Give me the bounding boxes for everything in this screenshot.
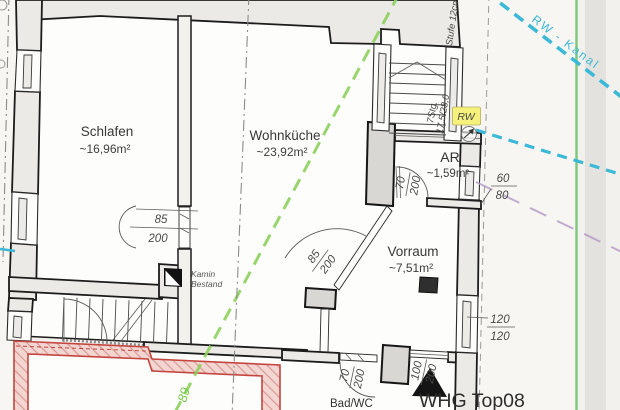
room-area-ar: ~1,59m² [427,168,470,180]
room-label-ar: AR [440,149,459,165]
svg-text:120: 120 [490,314,510,326]
rw-marker-label: RW [457,111,475,123]
kamin-symbol [164,268,182,287]
kamin-note-1: Kamin [191,269,215,279]
bad-south-wall [282,350,339,363]
unit-label: WHG Top08 [419,390,525,410]
room-area-schlafen: ~16,96m² [79,142,130,156]
schlafen-wohnkueche-wall-lower [178,249,191,347]
left-wall-mid [12,91,40,194]
window-left-3 [7,311,32,341]
room-area-wohnkueche: ~23,92m² [256,145,307,159]
dim-door-schlafen-h: 200 [147,233,168,245]
door-entry [410,350,448,359]
room-label-schlafen: Schlafen [81,124,134,139]
room-area-vorraum: ~7,51m² [389,261,433,275]
room-label-wohnkueche: Wohnküche [249,128,320,143]
window-left-1 [15,50,41,92]
svg-text:80: 80 [496,190,509,202]
bad-partition [320,309,329,352]
entry-pier [381,345,410,384]
wohnkueche-ar-dark-wall [366,122,395,206]
window-stair-right [444,47,463,141]
room-label-vorraum: Vorraum [387,244,438,259]
left-wall-stair-top [8,298,33,312]
floor-plan-svg: RW Schlafen ~16,96m² Wohnküche ~23,92m² … [0,0,620,410]
svg-text:60: 60 [497,173,510,185]
schlafen-wohnkueche-wall-upper [178,16,191,206]
window-vorraum-120x120 [456,295,478,353]
left-wall-top [16,0,42,51]
floor-plan-page: RW Schlafen ~16,96m² Wohnküche ~23,92m² … [0,0,620,410]
bad-wall-pier [305,288,336,309]
window-left-2 [11,192,38,245]
right-wall-mid [457,199,479,296]
shaft [419,277,438,293]
kamin-note-2: Bestand [191,279,222,289]
svg-text:120: 120 [490,331,510,343]
dim-door-schlafen-w: 85 [155,214,168,226]
room-label-bad-wc: Bad/WC [330,398,373,410]
window-stair-left [372,44,391,131]
